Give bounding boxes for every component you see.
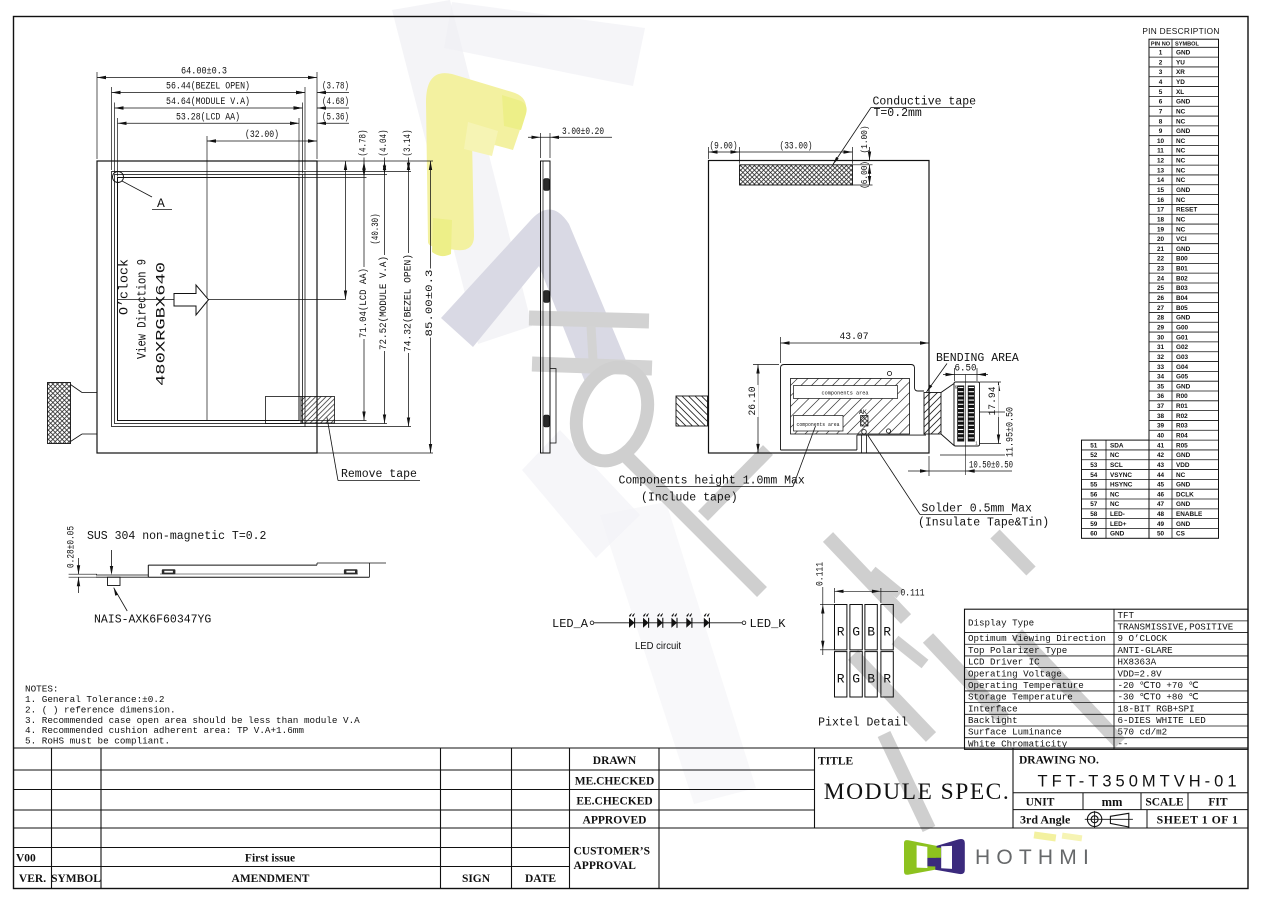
svg-text:10: 10: [1157, 138, 1165, 145]
svg-text:SCALE: SCALE: [1145, 797, 1184, 809]
svg-text:42: 42: [1157, 452, 1165, 459]
svg-text:55: 55: [1090, 482, 1098, 489]
svg-text:GND: GND: [1176, 99, 1191, 106]
svg-text:25: 25: [1157, 285, 1165, 292]
svg-text:43: 43: [1157, 462, 1165, 469]
svg-text:44: 44: [1157, 472, 1165, 479]
svg-text:2: 2: [1159, 59, 1163, 66]
svg-text:NC: NC: [1176, 118, 1186, 125]
svg-text:74.32(BEZEL OPEN): 74.32(BEZEL OPEN): [402, 254, 414, 352]
svg-text:SDA: SDA: [1110, 442, 1124, 449]
svg-text:APPROVAL: APPROVAL: [574, 860, 637, 872]
svg-text:85.00±0.3: 85.00±0.3: [424, 270, 436, 337]
svg-text:570 cd/m2: 570 cd/m2: [1118, 727, 1168, 738]
svg-text:1. General Tolerance:±0.2: 1. General Tolerance:±0.2: [25, 694, 164, 705]
svg-text:71.04(LCD AA): 71.04(LCD AA): [358, 268, 370, 338]
svg-text:NC: NC: [1176, 197, 1186, 204]
svg-text:R: R: [883, 672, 891, 687]
svg-text:36: 36: [1157, 393, 1165, 400]
svg-text:DATE: DATE: [525, 873, 556, 885]
svg-text:TRANSMISSIVE,POSITIVE: TRANSMISSIVE,POSITIVE: [1118, 622, 1234, 633]
svg-text:APPROVED: APPROVED: [583, 815, 647, 827]
svg-text:(1.00): (1.00): [859, 126, 870, 154]
svg-text:1: 1: [1159, 50, 1163, 57]
svg-text:GND: GND: [1176, 501, 1191, 508]
svg-text:(33.00): (33.00): [780, 141, 813, 153]
svg-text:NC: NC: [1110, 501, 1120, 508]
svg-text:SIGN: SIGN: [462, 873, 491, 885]
svg-text:G02: G02: [1176, 344, 1189, 351]
svg-text:B05: B05: [1176, 305, 1188, 312]
svg-text:53.28(LCD AA): 53.28(LCD AA): [176, 111, 240, 123]
svg-text:2. ( ) reference dimension.: 2. ( ) reference dimension.: [25, 705, 176, 716]
svg-text:ANTI-GLARE: ANTI-GLARE: [1118, 645, 1174, 656]
svg-text:5. RoHS must be compliant.: 5. RoHS must be compliant.: [25, 736, 170, 747]
svg-text:9: 9: [1159, 128, 1163, 135]
svg-text:V00: V00: [16, 853, 36, 865]
svg-text:ENABLE: ENABLE: [1176, 511, 1203, 518]
svg-text:HSYNC: HSYNC: [1110, 482, 1133, 489]
svg-text:20: 20: [1157, 236, 1165, 243]
svg-text:LCD Driver IC: LCD Driver IC: [968, 657, 1040, 668]
svg-text:15: 15: [1157, 187, 1165, 194]
svg-text:5: 5: [1159, 89, 1163, 96]
svg-text:Operating Voltage: Operating Voltage: [968, 668, 1062, 679]
svg-text:B04: B04: [1176, 295, 1188, 302]
svg-text:26: 26: [1157, 295, 1165, 302]
svg-text:16: 16: [1157, 197, 1165, 204]
svg-text:CS: CS: [1176, 531, 1186, 538]
svg-text:B: B: [867, 672, 875, 687]
svg-text:BENDING AREA: BENDING AREA: [936, 352, 1019, 365]
svg-text:NC: NC: [1176, 226, 1186, 233]
svg-text:50: 50: [1157, 531, 1165, 538]
svg-text:53: 53: [1090, 462, 1098, 469]
svg-text:R: R: [837, 672, 845, 687]
svg-text:56.44(BEZEL OPEN): 56.44(BEZEL OPEN): [166, 81, 250, 93]
svg-text:components area: components area: [797, 421, 840, 428]
svg-text:G01: G01: [1176, 334, 1189, 341]
svg-text:NC: NC: [1176, 177, 1186, 184]
svg-text:52: 52: [1090, 452, 1098, 459]
svg-text:LED-: LED-: [1110, 511, 1125, 518]
svg-text:Backlight: Backlight: [968, 715, 1018, 726]
svg-text:G00: G00: [1176, 324, 1189, 331]
svg-text:54.64(MODULE V.A): 54.64(MODULE V.A): [166, 96, 250, 108]
svg-text:28: 28: [1157, 315, 1165, 322]
svg-text:HX8363A: HX8363A: [1118, 657, 1157, 668]
svg-text:60: 60: [955, 385, 960, 390]
svg-text:(32.00): (32.00): [245, 129, 279, 141]
svg-text:60: 60: [1090, 531, 1098, 538]
svg-text:3rd Angle: 3rd Angle: [1020, 813, 1071, 827]
svg-text:57: 57: [1090, 501, 1098, 508]
svg-text:11: 11: [1157, 148, 1164, 155]
svg-text:3.00±0.20: 3.00±0.20: [562, 126, 604, 138]
svg-text:4: 4: [1159, 79, 1163, 86]
svg-text:LED_K: LED_K: [750, 617, 787, 631]
svg-text:G03: G03: [1176, 354, 1189, 361]
svg-text:9 O’CLOCK: 9 O’CLOCK: [1118, 633, 1168, 644]
svg-text:(3.14): (3.14): [402, 130, 414, 157]
svg-text:Optimum Viewing Direction: Optimum Viewing Direction: [968, 633, 1106, 644]
svg-text:EE.CHECKED: EE.CHECKED: [576, 796, 652, 808]
svg-text:O’clock: O’clock: [117, 259, 132, 315]
svg-text:26.10: 26.10: [747, 387, 759, 416]
svg-text:19: 19: [1157, 226, 1165, 233]
svg-text:8: 8: [1159, 118, 1163, 125]
svg-text:30: 30: [1157, 334, 1165, 341]
svg-text:(5.36): (5.36): [322, 111, 349, 123]
svg-text:NC: NC: [1176, 138, 1186, 145]
svg-text:18-BIT RGB+SPI: 18-BIT RGB+SPI: [1118, 703, 1195, 714]
svg-text:GND: GND: [1176, 452, 1191, 459]
svg-text:SYMBOL: SYMBOL: [1175, 42, 1200, 48]
svg-text:17: 17: [1157, 207, 1165, 214]
svg-text:DRAWN: DRAWN: [593, 755, 637, 767]
svg-text:0.28±0.05: 0.28±0.05: [67, 526, 78, 568]
svg-text:54: 54: [1090, 472, 1098, 479]
svg-text:Top Polarizer Type: Top Polarizer Type: [968, 645, 1067, 656]
svg-text:Remove tape: Remove tape: [341, 468, 417, 481]
svg-text:GND: GND: [1176, 246, 1191, 253]
svg-text:B00: B00: [1176, 256, 1188, 263]
svg-text:A: A: [157, 196, 165, 211]
svg-text:R03: R03: [1176, 423, 1188, 430]
svg-text:GND: GND: [1176, 315, 1191, 322]
svg-text:YD: YD: [1176, 79, 1185, 86]
svg-text:0.111: 0.111: [816, 562, 827, 586]
svg-text:31: 31: [1157, 344, 1165, 351]
svg-text:G: G: [852, 625, 860, 640]
svg-text:VSYNC: VSYNC: [1110, 472, 1132, 479]
svg-text:CUSTOMER’S: CUSTOMER’S: [574, 846, 650, 858]
svg-text:R: R: [883, 625, 891, 640]
svg-text:29: 29: [1157, 324, 1165, 331]
svg-text:13: 13: [1157, 167, 1165, 174]
svg-text:22: 22: [1157, 256, 1165, 263]
svg-text:MODULE SPEC.: MODULE SPEC.: [824, 779, 1010, 805]
svg-text:47: 47: [1157, 501, 1165, 508]
svg-text:(4.68): (4.68): [322, 96, 349, 108]
svg-text:SYMBOL: SYMBOL: [51, 873, 101, 885]
svg-text:NC: NC: [1176, 472, 1186, 479]
svg-text:LED_A: LED_A: [552, 617, 589, 631]
svg-text:6.50: 6.50: [955, 363, 977, 375]
svg-text:PIN NO: PIN NO: [1151, 42, 1171, 48]
svg-text:(9.00): (9.00): [710, 141, 738, 153]
svg-text:R: R: [837, 625, 845, 640]
svg-text:32: 32: [1157, 354, 1165, 361]
svg-text:GND: GND: [1176, 482, 1191, 489]
svg-text:B01: B01: [1176, 266, 1188, 273]
svg-text:-20 ℃TO +70 ℃: -20 ℃TO +70 ℃: [1118, 680, 1199, 691]
svg-text:T=0.2mm: T=0.2mm: [874, 107, 922, 120]
svg-text:View Direction 9: View Direction 9: [135, 259, 150, 359]
svg-text:NC: NC: [1176, 216, 1186, 223]
svg-text:SCL: SCL: [1110, 462, 1123, 469]
svg-text:components area: components area: [822, 389, 869, 396]
svg-text:UNIT: UNIT: [1026, 797, 1055, 809]
svg-text:4. Recommended cushion adheren: 4. Recommended cushion adherent area: TP…: [25, 725, 304, 736]
svg-text:FIT: FIT: [1208, 797, 1228, 809]
svg-text:17.94: 17.94: [987, 387, 999, 416]
svg-text:34: 34: [1157, 374, 1165, 381]
svg-text:18: 18: [1157, 216, 1165, 223]
svg-text:NAIS-AXK6F60347YG: NAIS-AXK6F60347YG: [94, 614, 211, 627]
svg-text:(Include tape): (Include tape): [641, 492, 738, 505]
svg-text:27: 27: [1157, 305, 1165, 312]
svg-text:NC: NC: [1176, 167, 1186, 174]
svg-text:VCI: VCI: [1176, 236, 1187, 243]
svg-text:R02: R02: [1176, 413, 1188, 420]
svg-text:45: 45: [1157, 482, 1165, 489]
svg-text:33: 33: [1157, 364, 1165, 371]
svg-text:B02: B02: [1176, 275, 1188, 282]
svg-text:(6.00): (6.00): [859, 161, 870, 189]
svg-text:XR: XR: [1176, 69, 1185, 76]
svg-text:TFT: TFT: [1118, 610, 1135, 621]
svg-text:DCLK: DCLK: [1176, 491, 1194, 498]
svg-text:B03: B03: [1176, 285, 1188, 292]
svg-text:NC: NC: [1176, 158, 1186, 165]
svg-text:YU: YU: [1176, 59, 1185, 66]
svg-text:48: 48: [1157, 511, 1165, 518]
svg-text:B: B: [867, 625, 875, 640]
svg-text:G: G: [852, 672, 860, 687]
svg-text:64.00±0.3: 64.00±0.3: [181, 66, 227, 78]
svg-text:R01: R01: [1176, 403, 1188, 410]
svg-text:GND: GND: [1176, 50, 1191, 57]
svg-text:59: 59: [1090, 521, 1098, 528]
svg-text:SHEET 1 OF 1: SHEET 1 OF 1: [1157, 813, 1239, 827]
svg-text:39: 39: [1157, 423, 1165, 430]
svg-text:GND: GND: [1176, 383, 1191, 390]
svg-text:14: 14: [1157, 177, 1165, 184]
svg-text:6-DIES WHITE LED: 6-DIES WHITE LED: [1118, 715, 1207, 726]
svg-text:PIN DESCRIPTION: PIN DESCRIPTION: [1142, 26, 1219, 36]
svg-text:23: 23: [1157, 266, 1165, 273]
svg-text:NC: NC: [1110, 491, 1120, 498]
svg-text:TFT-T350MTVH-01: TFT-T350MTVH-01: [1037, 773, 1240, 791]
svg-text:43.07: 43.07: [840, 331, 869, 343]
svg-text:GND: GND: [1176, 128, 1191, 135]
svg-text:10.50±0.50: 10.50±0.50: [969, 459, 1013, 471]
svg-text:7: 7: [1159, 108, 1163, 115]
svg-text:21: 21: [1157, 246, 1165, 253]
svg-text:11.95±0.50: 11.95±0.50: [1005, 407, 1017, 457]
svg-text:49: 49: [1157, 521, 1165, 528]
svg-text:480XRGBX640: 480XRGBX640: [154, 262, 169, 386]
svg-text:Operating Temperature: Operating Temperature: [968, 680, 1084, 691]
svg-text:R00: R00: [1176, 393, 1188, 400]
svg-text:GND: GND: [1110, 531, 1125, 538]
svg-text:NC: NC: [1176, 108, 1186, 115]
svg-text:(4.04): (4.04): [378, 130, 390, 157]
svg-text:GND: GND: [1176, 521, 1191, 528]
svg-text:Surface Luminance: Surface Luminance: [968, 727, 1062, 738]
svg-text:35: 35: [1157, 383, 1165, 390]
svg-text:(40.30): (40.30): [370, 214, 382, 245]
svg-text:R05: R05: [1176, 442, 1188, 449]
svg-text:3: 3: [1159, 69, 1163, 76]
svg-text:0.111: 0.111: [901, 588, 925, 599]
svg-text:6: 6: [1159, 99, 1163, 106]
svg-text:GND: GND: [1176, 187, 1191, 194]
svg-text:NOTES:: NOTES:: [25, 684, 58, 695]
svg-text:Solder 0.5mm Max: Solder 0.5mm Max: [922, 503, 1033, 516]
svg-text:XL: XL: [1176, 89, 1184, 96]
svg-text:NC: NC: [1110, 452, 1120, 459]
svg-text:46: 46: [1157, 491, 1165, 498]
svg-text:(4.78): (4.78): [358, 130, 370, 157]
svg-text:(Insulate Tape&Tin): (Insulate Tape&Tin): [918, 517, 1049, 530]
svg-text:G04: G04: [1176, 364, 1189, 371]
svg-text:24: 24: [1157, 275, 1165, 282]
svg-text:-30 ℃TO +80 ℃: -30 ℃TO +80 ℃: [1118, 692, 1199, 703]
svg-text:G05: G05: [1176, 374, 1189, 381]
svg-text:mm: mm: [1102, 795, 1123, 809]
svg-text:ME.CHECKED: ME.CHECKED: [575, 776, 655, 788]
svg-text:VDD: VDD: [1176, 462, 1190, 469]
svg-text:Interface: Interface: [968, 703, 1018, 714]
svg-text:DRAWING NO.: DRAWING NO.: [1019, 755, 1099, 767]
svg-text:VDD=2.8V: VDD=2.8V: [1118, 668, 1163, 679]
svg-text:56: 56: [1090, 491, 1098, 498]
svg-text:12: 12: [1157, 158, 1165, 165]
svg-text:Display Type: Display Type: [968, 618, 1034, 629]
svg-text:VER.: VER.: [19, 873, 46, 885]
svg-text:37: 37: [1157, 403, 1165, 410]
svg-text:AMENDMENT: AMENDMENT: [232, 873, 310, 885]
svg-text:SUS 304 non-magnetic T=0.2: SUS 304 non-magnetic T=0.2: [87, 530, 267, 543]
svg-text:TITLE: TITLE: [818, 756, 853, 768]
svg-text:LED circuit: LED circuit: [635, 640, 681, 652]
svg-text:40: 40: [1157, 433, 1165, 440]
svg-text:Pixtel Detail: Pixtel Detail: [818, 717, 908, 730]
svg-text:Components height 1.0mm Max: Components height 1.0mm Max: [619, 475, 805, 488]
svg-text:RESET: RESET: [1176, 207, 1197, 214]
svg-text:58: 58: [1090, 511, 1098, 518]
svg-text:41: 41: [1157, 442, 1165, 449]
svg-text:HOTHMI: HOTHMI: [975, 846, 1095, 869]
svg-text:38: 38: [1157, 413, 1165, 420]
svg-text:NC: NC: [1176, 148, 1186, 155]
svg-text:LED+: LED+: [1110, 521, 1127, 528]
svg-text:First issue: First issue: [245, 853, 295, 865]
svg-text:51: 51: [1090, 442, 1098, 449]
svg-text:(3.78): (3.78): [322, 81, 349, 93]
svg-text:AK: AK: [859, 409, 867, 416]
svg-text:Storage Temperature: Storage Temperature: [968, 692, 1073, 703]
svg-text:R04: R04: [1176, 433, 1188, 440]
svg-text:72.52(MODULE V.A): 72.52(MODULE V.A): [378, 256, 390, 350]
